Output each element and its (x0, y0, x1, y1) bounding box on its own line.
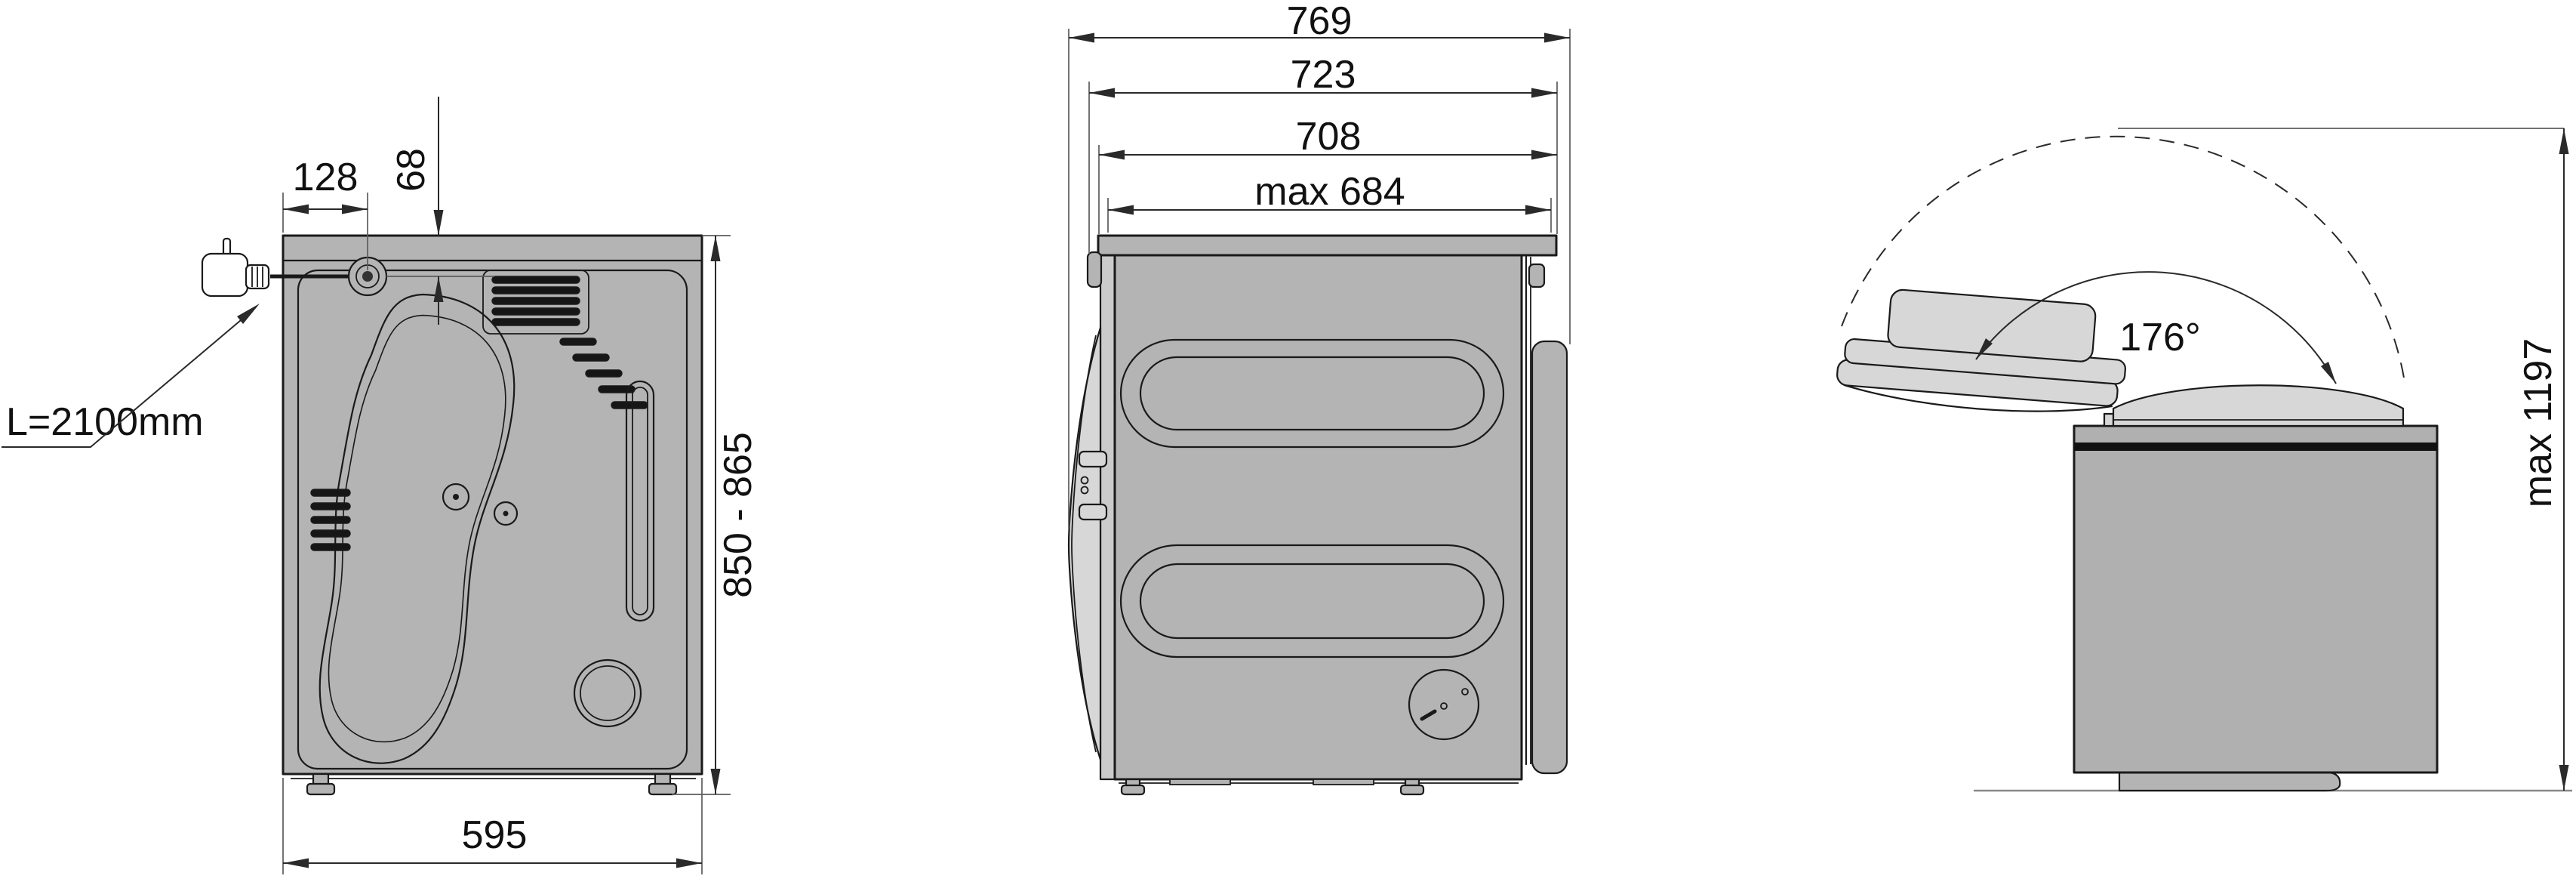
dim-label-769: 769 (1287, 0, 1353, 43)
lid-view: 176° max 1197 (1836, 128, 2572, 791)
dim-label-128: 128 (293, 156, 359, 199)
lid-view-body (2074, 426, 2437, 773)
dim-label-723: 723 (1291, 53, 1356, 97)
dim-label-max1197: max 1197 (2516, 338, 2560, 508)
dim-label-max684: max 684 (1254, 170, 1405, 214)
side-view: 769 723 708 max 684 (1069, 0, 1570, 794)
cable-length-label: L=2100mm (6, 400, 204, 444)
rear-vent-bank (483, 270, 589, 334)
lid-view-gap-band (2074, 443, 2437, 451)
side-worktop (1098, 236, 1556, 255)
side-rear-duct (1532, 341, 1567, 773)
dim-label-68: 68 (389, 148, 433, 192)
rear-feet (307, 774, 676, 794)
plug (202, 239, 269, 296)
side-door (1069, 328, 1106, 760)
dim-label-176deg: 176° (2119, 316, 2201, 359)
door-hinge-bar-top (1079, 452, 1106, 467)
side-rear-tab (1529, 264, 1544, 287)
cable-length-callout: L=2100mm (2, 304, 260, 447)
door-hinge-bar-bottom (1079, 504, 1106, 520)
drawing-canvas: L=2100mm 128 68 85 (0, 0, 2576, 882)
dim-label-height: 850 - 865 (716, 432, 760, 598)
side-feet (1122, 779, 1423, 794)
technical-drawing: L=2100mm 128 68 85 (0, 0, 2576, 882)
side-front-trim (1088, 252, 1101, 287)
dim-label-595: 595 (462, 813, 528, 857)
dim-depth-opening: max 684 (1108, 170, 1551, 233)
rear-view: L=2100mm 128 68 85 (2, 97, 760, 874)
dim-label-708: 708 (1296, 115, 1362, 159)
lid-view-plinth (2119, 773, 2340, 791)
side-body (1115, 255, 1522, 779)
closed-lid (2104, 385, 2403, 426)
dim-width: 595 (283, 778, 702, 874)
